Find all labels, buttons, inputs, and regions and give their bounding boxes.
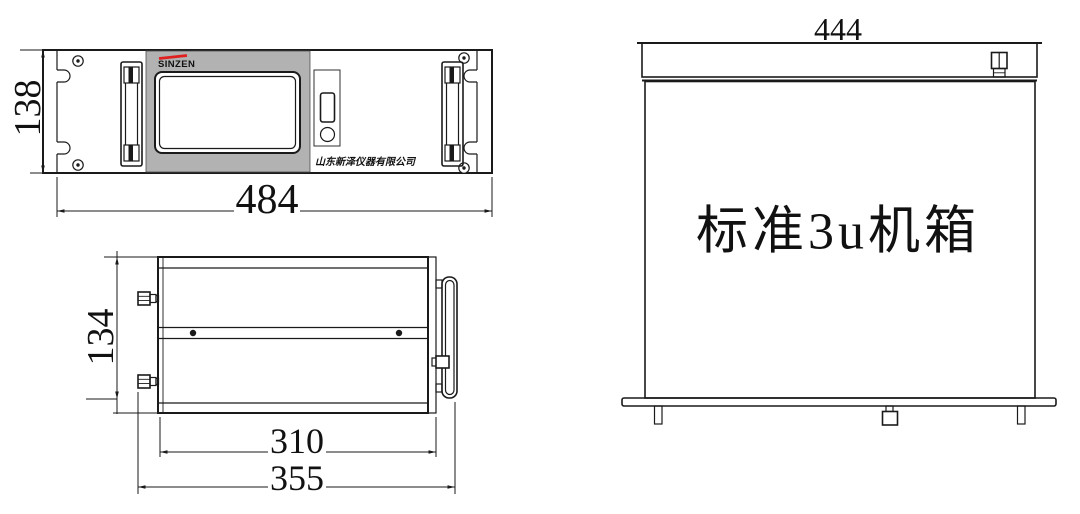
top-cover	[642, 43, 1037, 77]
rack-handle-left	[121, 62, 142, 166]
gas-fitting	[138, 292, 159, 305]
handle-latch	[436, 356, 449, 368]
left-mount-slots	[57, 70, 70, 154]
dim-text-355: 355	[270, 458, 324, 498]
cover-edges	[158, 268, 428, 403]
dim-width-444: 444	[814, 11, 862, 47]
company-name: 山东新泽仪器有限公司	[315, 156, 417, 168]
rivet-dot	[190, 330, 196, 336]
drawing-svg: SINZEN 山东新泽仪器有限公司 138 484	[0, 0, 1080, 514]
top-fitting	[992, 53, 1008, 78]
leg-right	[1018, 406, 1026, 424]
screw-icon	[73, 160, 83, 170]
dim-text-138: 138	[7, 80, 49, 137]
dim-text-444: 444	[814, 11, 862, 47]
leg-left	[655, 406, 663, 424]
touchscreen-outer	[155, 72, 300, 153]
top-view: 134 310 355	[80, 251, 457, 498]
power-button	[321, 128, 335, 142]
dim-text-310: 310	[270, 421, 324, 461]
rack-handle-right	[442, 62, 463, 166]
front-view: SINZEN 山东新泽仪器有限公司 138 484	[7, 50, 492, 223]
technical-drawing-canvas: SINZEN 山东新泽仪器有限公司 138 484	[0, 0, 1080, 514]
right-mount-slots	[464, 70, 477, 154]
dim-height-134: 134	[80, 251, 158, 414]
base-plate	[622, 398, 1056, 406]
chassis-body	[158, 257, 428, 413]
rivet-dot	[396, 330, 402, 336]
chassis-caption: 标准3u机箱	[696, 204, 980, 261]
front-panel-edge	[428, 257, 436, 413]
divider-band	[158, 328, 428, 339]
screw-icon	[73, 56, 83, 66]
bottom-fitting	[883, 406, 898, 425]
dim-width-484: 484	[57, 177, 492, 223]
screw-icon	[459, 163, 469, 173]
side-view: 444 标准3u机箱	[622, 11, 1056, 425]
usb-port	[321, 93, 335, 122]
dim-text-484: 484	[236, 177, 299, 223]
port-panel	[314, 70, 340, 146]
dim-text-134: 134	[80, 309, 122, 366]
dim-height-138: 138	[7, 50, 49, 173]
gas-fitting	[138, 375, 159, 388]
dim-depth-310: 310	[160, 417, 436, 461]
brand-logo: SINZEN	[158, 59, 195, 70]
